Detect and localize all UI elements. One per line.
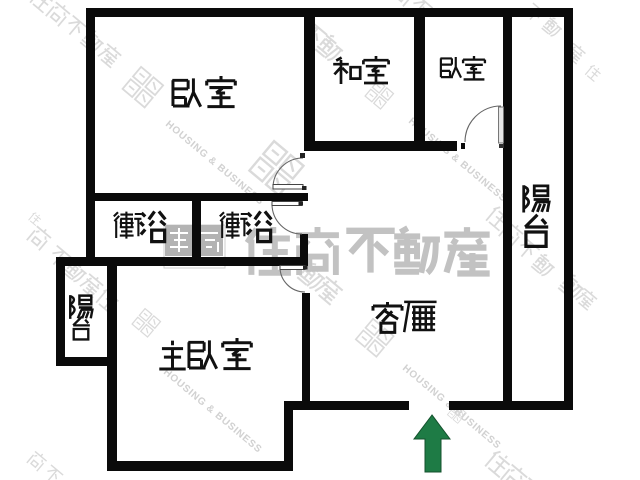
svg-text:HOUSING & BUSINESS: HOUSING & BUSINESS — [161, 367, 264, 456]
